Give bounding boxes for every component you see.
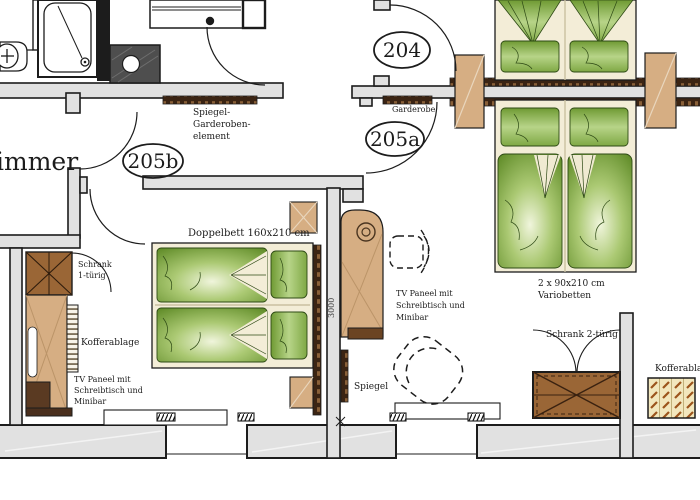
tv-panel-desk-right [341,210,383,339]
variobetten-label-1: 2 x 90x210 cm [538,279,605,289]
spiegel-label: Spiegel [354,382,388,392]
doppelbett-label: Doppelbett 160x210 cm [188,228,310,239]
garderobe-label: Garderobe [392,105,436,114]
schrank2-label: Schrank 2-türig [546,330,618,340]
washbasin-icon [0,42,27,71]
schrank-2tuerig [533,330,620,418]
armchair-icon [386,329,471,413]
tv-panel-right-label-2: Schreibtisch und [396,301,465,310]
room-205a-label: 205a [370,127,420,151]
kofferablage-left-label: Kofferablage [81,338,139,348]
wall-immer-south [0,235,80,248]
cut-room-label: immer [0,147,78,176]
bed-205a-variobetten [495,100,636,272]
wall-205b-left-upper [68,168,80,238]
headboard-strip-doppelbett [313,245,321,415]
floor-plan-svg: 204 205a 205b immer Spiegel- Garderoben-… [0,0,700,500]
minibar-block [348,328,383,339]
spiegel-garderoben-label-3: element [193,132,230,142]
shaft-icon [110,45,160,83]
wall-3000 [327,188,340,458]
door-arc-corridor [207,27,265,85]
kofferablage-rack-left [67,305,78,372]
kofferablage-rack-right [648,378,695,418]
door-arc-205b-inner [90,189,145,244]
spiegel-garderoben-label-2: Garderoben- [193,120,251,130]
variobetten-label-2: Variobetten [537,291,591,301]
tv-panel-right-label-1: TV Paneel mit [396,289,453,298]
floor-plan: 204 205a 205b immer Spiegel- Garderoben-… [0,0,700,500]
tv-panel-left-label-1: TV Paneel mit [74,375,131,384]
room-205b-label: 205b [128,149,179,173]
wall-notch-205a [360,98,372,106]
wall-pier-204 [374,76,389,86]
wc-cistern-icon [150,0,265,28]
spiegel-garderoben-label-1: Spiegel- [193,108,230,118]
dimension-3000-label: 3000 [327,298,336,318]
bed-204 [495,0,636,80]
schrank1-label-2: 1-türig [78,271,106,280]
wall-205b-inner [143,176,363,189]
tv-panel-left-label-2: Schreibtisch und [74,386,143,395]
tv-panel-right-label-3: Minibar [396,313,428,322]
bathroom [0,0,265,83]
wall-step [343,189,363,202]
tv-panel-desk-left [26,295,72,416]
tv-panel-left-label-3: Minibar [74,397,106,406]
wall-koffer-right [620,313,633,458]
wall-pier [66,93,80,113]
spiegel-mirror-strip [341,350,348,402]
kofferablage-right-label: Kofferablage [655,364,700,374]
wall-black [97,0,110,81]
schrank1-label-1: Schrank [78,260,112,269]
garderobe-strip [383,96,432,104]
wall-205b-outer-left [10,248,22,425]
shower-icon [38,0,97,77]
wall-pier-top [374,0,390,10]
desk-chair-icon [390,230,429,273]
spiegel-garderoben-strip [163,96,257,104]
doppelbett [152,243,313,368]
wall-jog [80,177,87,193]
room-204-label: 204 [383,38,421,62]
